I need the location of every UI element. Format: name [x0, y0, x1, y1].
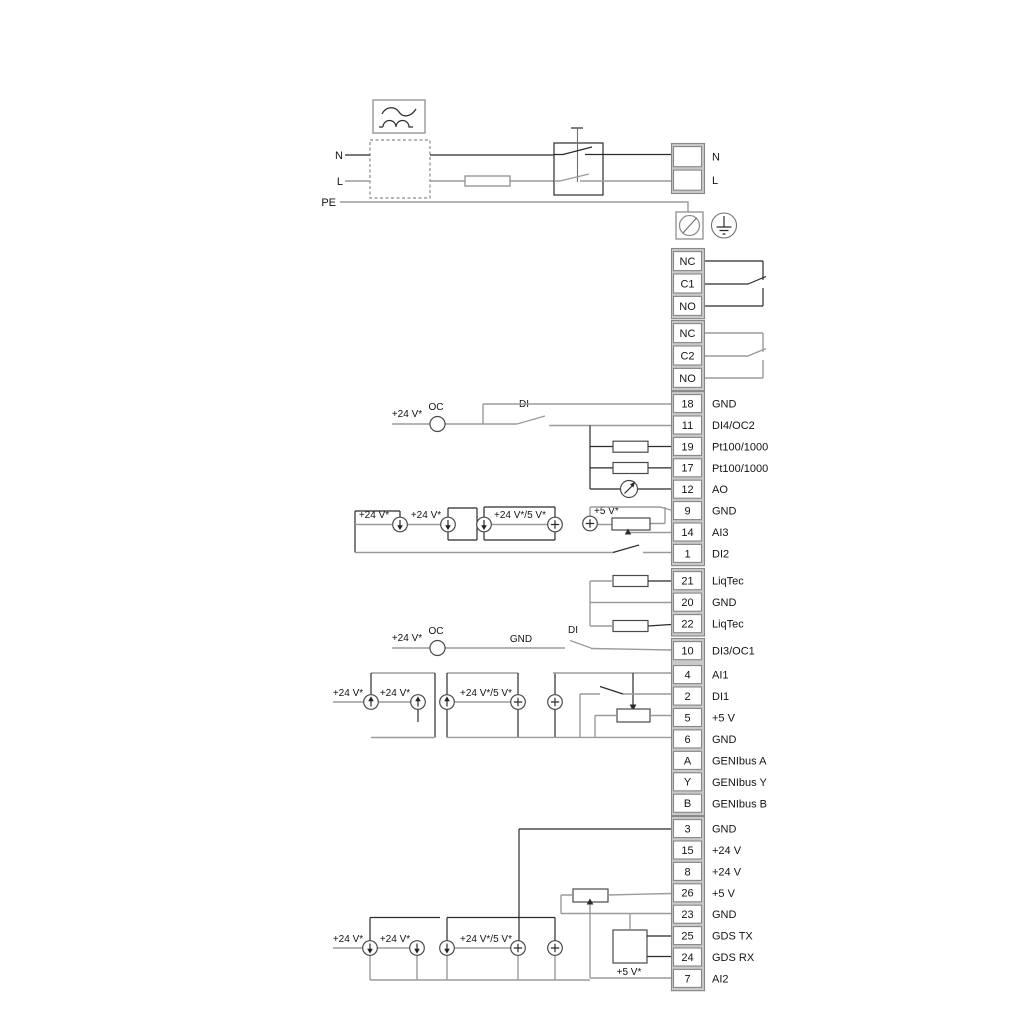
terminal-label: GDS RX: [712, 952, 755, 964]
terminal-number: 12: [681, 484, 693, 496]
terminal-number: 5: [684, 712, 690, 724]
current-source-up-icon: [364, 695, 379, 710]
fuse: [465, 176, 510, 186]
terminal-group-io-mid: 10DI3/OC14AI12DI15+5 V6GNDAGENIbus AYGEN…: [672, 639, 768, 816]
voltage-source-icon: [511, 941, 526, 956]
terminal-group-io-bottom: 3GND15+24 V8+24 V26+5 V23GND25GDS TX24GD…: [672, 817, 755, 991]
terminal-cell: [674, 147, 702, 167]
annotation-24v: +24 V*: [411, 510, 441, 521]
annotation-24v-5v: +24 V*/5 V*: [460, 934, 512, 945]
current-source-symbols: [363, 516, 598, 955]
liqtec-sensor-2: [613, 621, 648, 632]
open-collector-icon: [430, 641, 445, 656]
pt100-sensor-2: [613, 463, 648, 474]
terminal-label: GND: [712, 597, 737, 609]
annotation-24v: +24 V*: [359, 510, 389, 521]
terminal-label: N: [712, 152, 720, 164]
ai1-sensor-supply-chain: +24 V* +24 V* +24 V*/5 V*: [333, 673, 671, 738]
annotation-24v-5v: +24 V*/5 V*: [460, 688, 512, 699]
terminal-number: 19: [681, 441, 693, 453]
open-collector-icon: [430, 417, 445, 432]
terminal-label: GND: [712, 824, 737, 836]
terminal-number: 18: [681, 399, 693, 411]
terminal-cell: [674, 170, 702, 190]
terminal-label: GENIbus B: [712, 798, 767, 810]
terminal-label: GND: [712, 734, 737, 746]
terminal-label: GND: [712, 909, 737, 921]
terminal-number: 7: [684, 973, 690, 985]
terminal-group-relay-2: NCC2NO: [672, 321, 705, 391]
di2-switch-arm: [613, 545, 639, 553]
terminal-label: +24 V: [712, 866, 742, 878]
terminal-number: 20: [681, 597, 693, 609]
current-source-up-icon: [411, 695, 426, 710]
terminal-label: +24 V: [712, 845, 742, 857]
terminal-label: AI2: [712, 973, 729, 985]
relay-1-contacts: [704, 261, 766, 306]
terminal-label: +5 V: [712, 888, 736, 900]
di1-switch-arm: [600, 687, 623, 695]
terminal-group-relay-1: NCC1NO: [672, 249, 705, 319]
wiring-diagram-canvas: N L PE: [0, 0, 1024, 1024]
annotation-24v: +24 V*: [380, 934, 410, 945]
terminal-label: AI3: [712, 527, 729, 539]
terminal-number: 11: [682, 420, 693, 432]
terminal-number: 14: [681, 527, 693, 539]
annotation-5v: +5 V*: [617, 967, 642, 978]
terminal-number: 4: [684, 669, 690, 681]
voltage-source-icon: [548, 695, 563, 710]
terminal-group-io-top: 18GND11DI4/OC219Pt100/100017Pt100/100012…: [672, 392, 769, 566]
label-n-left: N: [335, 150, 343, 162]
terminal-number: 25: [681, 931, 693, 943]
analog-output-meter-icon: [621, 481, 638, 498]
terminal-number: 22: [681, 619, 693, 631]
terminal-label: Pt100/1000: [712, 441, 768, 453]
pt100-and-ao-circuit: [590, 426, 671, 498]
annotation-24v: +24 V*: [380, 688, 410, 699]
annotation-24v: +24 V*: [333, 934, 363, 945]
terminal-label: L: [712, 175, 718, 187]
terminal-number: 23: [681, 909, 693, 921]
terminal-blocks: NLNCC1NONCC2NO18GND11DI4/OC219Pt100/1000…: [672, 144, 769, 991]
voltage-source-icon: [511, 695, 526, 710]
terminal-group-liqtec: 21LiqTec20GND22LiqTec: [672, 569, 745, 637]
digital-input-4-circuit: +24 V* OC DI: [392, 399, 671, 432]
terminal-number: 9: [684, 506, 690, 518]
current-source-down-icon: [393, 517, 408, 532]
terminal-number: Y: [684, 777, 692, 789]
terminal-number: B: [684, 798, 691, 810]
terminal-label: DI4/OC2: [712, 420, 755, 432]
terminal-label: GENIbus A: [712, 755, 767, 767]
annotation-24v: +24 V*: [392, 409, 422, 420]
terminal-label: DI1: [712, 691, 729, 703]
terminal-number: 1: [684, 548, 690, 560]
liqtec-sensor-circuit: [590, 576, 671, 632]
terminal-label: LiqTec: [712, 619, 744, 631]
voltage-source-icon: [583, 516, 598, 531]
supply-unit-box: [370, 140, 430, 198]
terminal-number: 17: [681, 463, 693, 475]
terminal-group-power-nl: NL: [672, 144, 721, 194]
terminal-number: 8: [684, 866, 690, 878]
gds-sensor-box: [613, 930, 647, 963]
terminal-label: AO: [712, 484, 728, 496]
terminal-number: 15: [681, 845, 693, 857]
terminal-label: GENIbus Y: [712, 777, 767, 789]
current-source-down-icon: [363, 941, 378, 956]
terminal-label: GND: [712, 399, 737, 411]
annotation-gnd: GND: [510, 634, 532, 645]
relay-2-switch-arm: [748, 349, 766, 357]
annotation-24v: +24 V*: [392, 633, 422, 644]
label-pe-left: PE: [321, 197, 336, 209]
terminal-label: AI1: [712, 670, 729, 682]
terminal-number: 21: [681, 576, 693, 588]
current-source-down-icon: [441, 517, 456, 532]
terminal-number: 10: [681, 646, 693, 658]
ai2-gds-circuit: +24 V* +24 V* +24 V*/5 V* +5 V*: [333, 829, 671, 980]
voltage-source-icon: [548, 517, 563, 532]
pt100-sensor-1: [613, 441, 648, 452]
voltage-source-icon: [548, 941, 563, 956]
current-source-up-icon: [440, 695, 455, 710]
terminal-label: LiqTec: [712, 576, 744, 588]
terminal-number: 24: [681, 952, 693, 964]
terminal-label: +5 V: [712, 712, 736, 724]
terminal-label: DI3/OC1: [712, 646, 755, 658]
pe-wire: [340, 202, 688, 212]
mains-filter-symbol: [373, 100, 425, 133]
label-l-left: L: [337, 176, 343, 188]
annotation-24v-5v: +24 V*/5 V*: [494, 510, 546, 521]
terminal-number: 3: [684, 824, 690, 836]
terminal-number: NO: [679, 301, 696, 313]
di3-switch-arm: [570, 641, 591, 649]
current-source-down-icon: [410, 941, 425, 956]
terminal-number: A: [684, 755, 692, 767]
current-source-down-icon: [477, 517, 492, 532]
ai1-potentiometer: [617, 709, 650, 722]
di4-switch-arm: [517, 416, 545, 424]
annotation-di: DI: [568, 625, 578, 636]
relay-1-switch-arm: [748, 277, 766, 285]
terminal-number: NC: [680, 256, 696, 268]
relay-2-contacts: [704, 333, 766, 378]
terminal-number: 2: [684, 691, 690, 703]
terminal-label: Pt100/1000: [712, 463, 768, 475]
terminal-label: DI2: [712, 548, 729, 560]
annotation-oc: OC: [429, 626, 444, 637]
terminal-label: GDS TX: [712, 931, 753, 943]
terminal-label: GND: [712, 506, 737, 518]
ai3-potentiometer: [612, 518, 650, 530]
liqtec-sensor-1: [613, 576, 648, 587]
pe-screw-terminal: [676, 212, 703, 239]
wiring-diagram: N L PE: [0, 0, 1024, 1024]
terminal-number: C2: [680, 350, 694, 362]
terminal-number: NC: [680, 328, 696, 340]
terminal-number: 6: [684, 734, 690, 746]
mains-switch: [554, 128, 671, 195]
terminal-number: C1: [680, 278, 694, 290]
terminal-number: NO: [679, 373, 696, 385]
protective-earth-icon: [712, 213, 737, 238]
annotation-oc: OC: [429, 402, 444, 413]
annotation-24v: +24 V*: [333, 688, 363, 699]
current-source-down-icon: [440, 941, 455, 956]
terminal-number: 26: [681, 888, 693, 900]
